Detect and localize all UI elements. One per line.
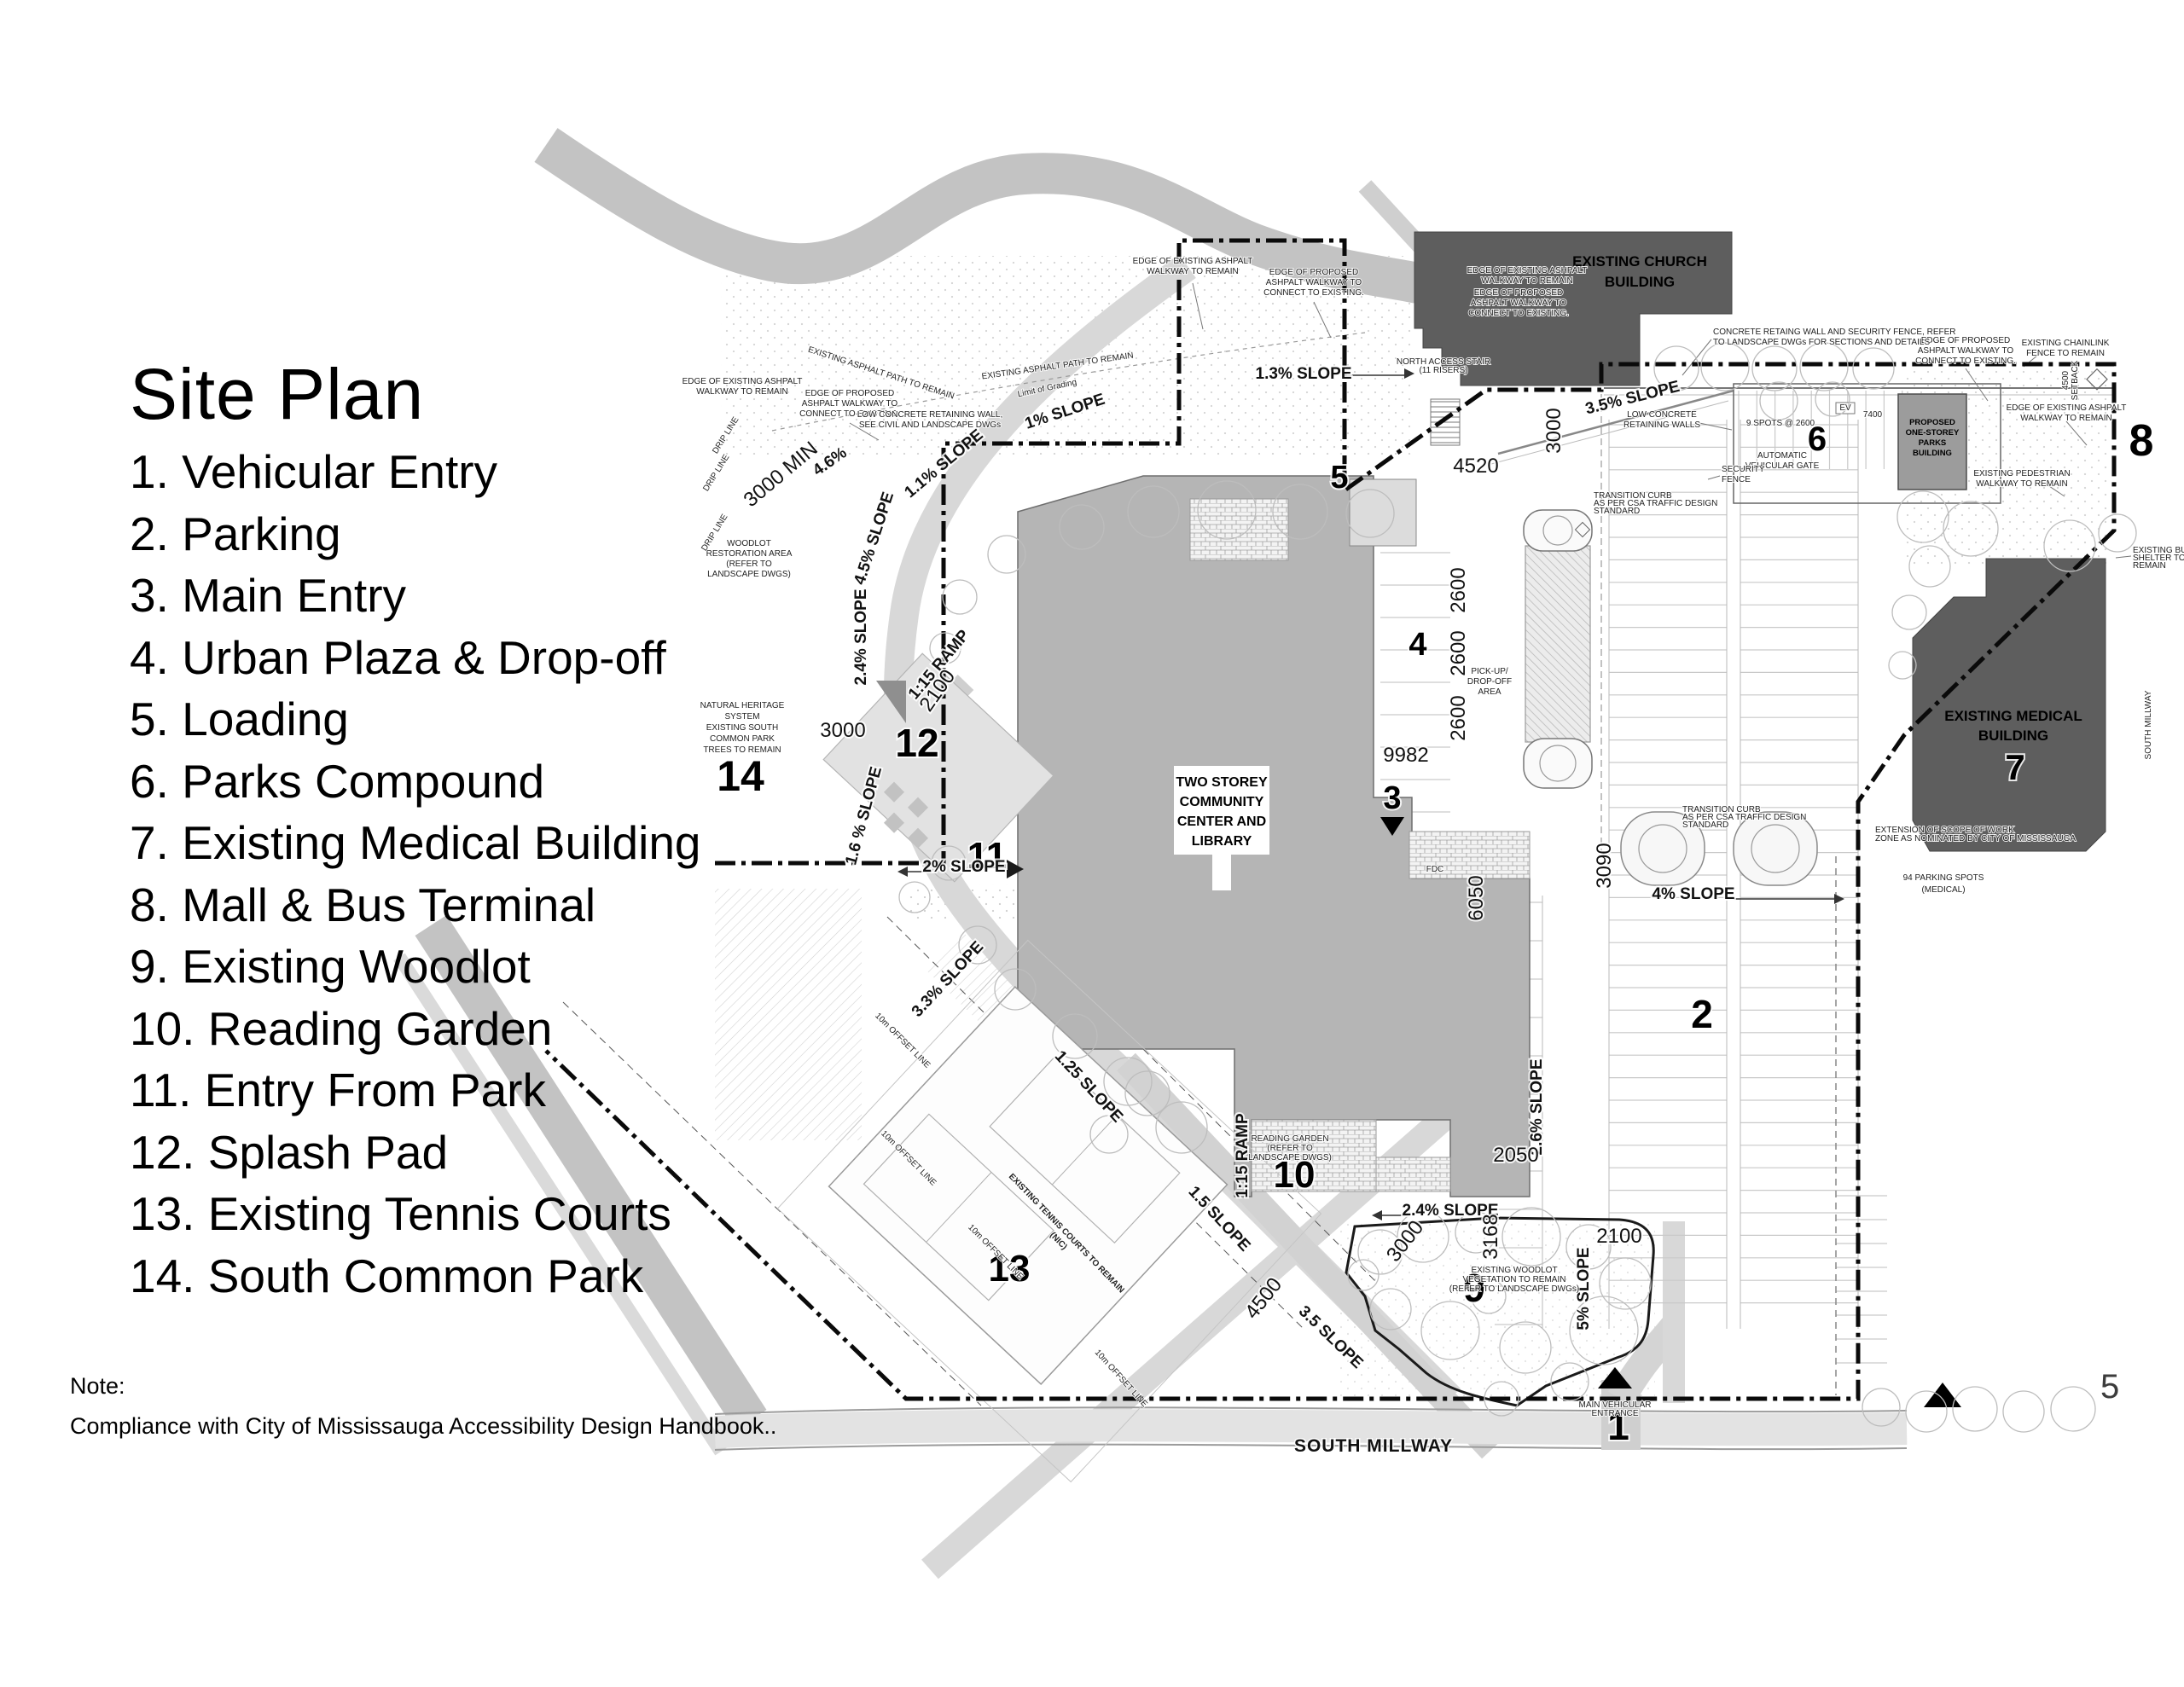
note-ev: EV xyxy=(1839,403,1851,413)
leader xyxy=(1682,339,1711,375)
legend-item-5: 5. Loading xyxy=(130,688,701,751)
note-low-walls: LOW CONCRETERETAINING WALLS xyxy=(1623,410,1700,430)
note-edge-existing: EDGE OF EXISTING ASHPALTWALKWAY TO REMAI… xyxy=(1467,266,1588,286)
tree-icon xyxy=(1953,1387,1997,1431)
note-fdc: FDC xyxy=(1426,865,1444,874)
legend-item-8: 8. Mall & Bus Terminal xyxy=(130,874,701,936)
tree-icon xyxy=(943,580,977,614)
legend-item-11: 11. Entry From Park xyxy=(130,1059,701,1122)
tree-icon xyxy=(1889,652,1916,679)
tree-icon xyxy=(1906,1391,1947,1432)
dim-2600: 2600 xyxy=(1447,630,1470,675)
page-title: Site Plan xyxy=(130,358,701,430)
note-chainlink: EXISTING CHAINLINKFENCE TO REMAIN xyxy=(2022,339,2110,358)
legend-item-4: 4. Urban Plaza & Drop-off xyxy=(130,627,701,689)
arrow-left-icon xyxy=(1372,1210,1382,1220)
dim-2600: 2600 xyxy=(1447,695,1470,740)
dim-3090: 3090 xyxy=(1593,843,1616,888)
reading-garden-paving-2 xyxy=(1376,1157,1450,1191)
note-woodlot-restoration: WOODLOTRESTORATION AREA(REFER TOLANDSCAP… xyxy=(706,539,793,579)
note-low-wall-civil: LOW CONCRETE RETAINING WALL,SEE CIVIL AN… xyxy=(857,410,1003,430)
tree-icon xyxy=(1853,348,1894,389)
area-label-5: 5 xyxy=(1330,460,1348,496)
dim-2050: 2050 xyxy=(1493,1144,1538,1167)
north-arrow-triangle-icon xyxy=(1924,1383,1961,1407)
area-label-3: 3 xyxy=(1383,780,1401,816)
slope-label: 2.4% SLOPE xyxy=(852,589,870,686)
note-security-fence: SECURITYFENCE xyxy=(1722,465,1765,484)
note-natural-heritage: NATURAL HERITAGESYSTEMEXISTING SOUTHCOMM… xyxy=(700,701,785,755)
note-concrete-fence: CONCRETE RETAING WALL AND SECURITY FENCE… xyxy=(1713,328,1955,347)
note-transition-curb: TRANSITION CURBAS PER CSA TRAFFIC DESIGN… xyxy=(1594,491,1717,516)
dim-2600: 2600 xyxy=(1447,567,1470,612)
arrow-left-icon xyxy=(897,867,908,877)
dim-6050: 6050 xyxy=(1465,875,1488,920)
note-edge-proposed: EDGE OF PROPOSEDASHPALT WALKWAY TOCONNEC… xyxy=(1263,268,1364,298)
arrow-right-icon xyxy=(1834,894,1844,904)
leader xyxy=(2116,556,2131,558)
loading-dock xyxy=(1350,479,1416,546)
legend-item-9: 9. Existing Woodlot xyxy=(130,936,701,998)
parking-island xyxy=(1734,812,1817,885)
note-offset-line: 10m OFFSET LINE xyxy=(873,1012,932,1070)
note-spots: 9 SPOTS @ 2600 xyxy=(1746,419,1815,428)
note-edge-existing: EDGE OF EXISTING ASHPALTWALKWAY TO REMAI… xyxy=(1133,257,1253,276)
page-number: 5 xyxy=(2100,1368,2119,1406)
legend-item-3: 3. Main Entry xyxy=(130,565,701,627)
dim-3000: 3000 xyxy=(1542,408,1565,453)
slope-label: 2.6% SLOPE xyxy=(1528,1059,1546,1156)
compliance-note: Note: Compliance with City of Mississaug… xyxy=(70,1366,776,1446)
legend-list: 1. Vehicular Entry 2. Parking 3. Main En… xyxy=(130,441,701,1307)
north-access-stair xyxy=(1431,399,1460,445)
legend-item-14: 14. South Common Park xyxy=(130,1245,701,1307)
dim-9982: 9982 xyxy=(1383,744,1428,767)
note-edge-existing: EDGE OF EXISTING ASHPALTWALKWAY TO REMAI… xyxy=(2007,403,2127,423)
note-bus-shelter: EXISTING BUSSHELTER TOREMAIN xyxy=(2133,546,2184,571)
area-label-14: 14 xyxy=(717,752,764,800)
tree-icon xyxy=(1892,595,1926,629)
legend-item-7: 7. Existing Medical Building xyxy=(130,812,701,874)
street-label-south-millway: SOUTH MILLWAY xyxy=(1294,1436,1453,1456)
note-pickup: PICK-UP/DROP-OFFAREA xyxy=(1467,667,1512,697)
street-label-south-millway-side: SOUTH MILLWAY xyxy=(2144,690,2153,759)
dropoff-island-south xyxy=(1524,739,1592,788)
note-edge-proposed: EDGE OF PROPOSEDASHPALT WALKWAY TOCONNEC… xyxy=(1468,288,1569,318)
tree-icon xyxy=(1701,343,1749,391)
area-label-4: 4 xyxy=(1409,627,1426,663)
legend-item-10: 10. Reading Garden xyxy=(130,998,701,1060)
dim-3000: 3000 xyxy=(820,719,865,742)
legend-item-13: 13. Existing Tennis Courts xyxy=(130,1183,701,1245)
dim-4520: 4520 xyxy=(1453,455,1498,478)
south-millway-road xyxy=(715,1425,1907,1432)
note-text: Compliance with City of Mississauga Acce… xyxy=(70,1406,776,1446)
legend-item-12: 12. Splash Pad xyxy=(130,1122,701,1184)
legend-item-2: 2. Parking xyxy=(130,503,701,565)
legend: Site Plan 1. Vehicular Entry 2. Parking … xyxy=(130,358,701,1307)
note-label: Note: xyxy=(70,1366,776,1406)
slope-label: 1.3% SLOPE xyxy=(1256,365,1352,383)
legend-item-1: 1. Vehicular Entry xyxy=(130,441,701,503)
note-edge-proposed: EDGE OF PROPOSEDASHPALT WALKWAY TOCONNEC… xyxy=(1915,336,2016,366)
dropoff-hatch-band xyxy=(1525,546,1590,742)
note-parking-spots: 94 PARKING SPOTS(MEDICAL) xyxy=(1903,873,1984,895)
parking-islands xyxy=(1524,510,1817,885)
leader xyxy=(1708,476,1720,479)
note-drip-line: DRIP LINE xyxy=(701,453,731,493)
tree-icon xyxy=(2003,1391,2044,1432)
legend-item-6: 6. Parks Compound xyxy=(130,751,701,813)
dim-3168: 3168 xyxy=(1479,1214,1502,1259)
tree-icon xyxy=(2051,1387,2095,1431)
site-plan-page: Site Plan 1. Vehicular Entry 2. Parking … xyxy=(0,0,2184,1687)
slope-label: 4% SLOPE xyxy=(1652,885,1734,903)
area-label-7: 7 xyxy=(2005,747,2024,787)
slope-label: 4.5% SLOPE xyxy=(851,490,897,587)
area-label-12: 12 xyxy=(895,721,938,765)
note-drip-line: DRIP LINE xyxy=(700,513,729,553)
medical-building xyxy=(1913,559,2106,851)
community-label-stem xyxy=(1212,855,1231,890)
dim-2100: 2100 xyxy=(1596,1225,1641,1248)
woodlot-restoration-hatch xyxy=(715,889,862,1140)
area-label-2: 2 xyxy=(1691,992,1713,1036)
dim-7400: 7400 xyxy=(1863,410,1883,420)
area-label-8: 8 xyxy=(2129,416,2154,466)
note-pedestrian: EXISTING PEDESTRIANWALKWAY TO REMAIN xyxy=(1973,469,2070,489)
slope-label: 2% SLOPE xyxy=(922,858,1005,876)
